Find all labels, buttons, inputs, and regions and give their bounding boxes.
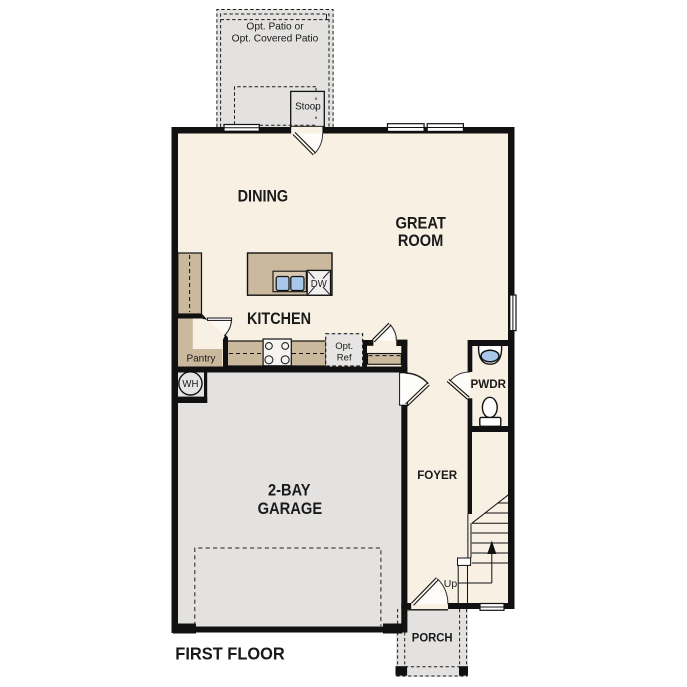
svg-text:PORCH: PORCH xyxy=(412,631,453,645)
svg-text:Opt. Covered Patio: Opt. Covered Patio xyxy=(232,34,319,45)
svg-text:FOYER: FOYER xyxy=(417,469,458,482)
svg-text:Pantry: Pantry xyxy=(186,354,215,365)
svg-text:GREAT: GREAT xyxy=(395,215,446,233)
svg-text:Up: Up xyxy=(444,578,458,590)
svg-text:Opt. Patio or: Opt. Patio or xyxy=(246,22,304,33)
svg-text:2-BAY: 2-BAY xyxy=(268,480,311,499)
svg-text:Opt.: Opt. xyxy=(335,341,353,352)
svg-text:FIRST FLOOR: FIRST FLOOR xyxy=(175,644,285,664)
svg-text:WH: WH xyxy=(182,379,198,390)
svg-text:KITCHEN: KITCHEN xyxy=(247,309,311,328)
svg-text:Stoop: Stoop xyxy=(295,102,321,113)
svg-text:Ref: Ref xyxy=(337,353,352,364)
svg-text:GARAGE: GARAGE xyxy=(258,499,323,518)
svg-text:ROOM: ROOM xyxy=(398,232,443,250)
svg-text:DINING: DINING xyxy=(238,188,289,206)
svg-text:PWDR: PWDR xyxy=(471,377,507,391)
svg-text:DW: DW xyxy=(311,279,327,290)
